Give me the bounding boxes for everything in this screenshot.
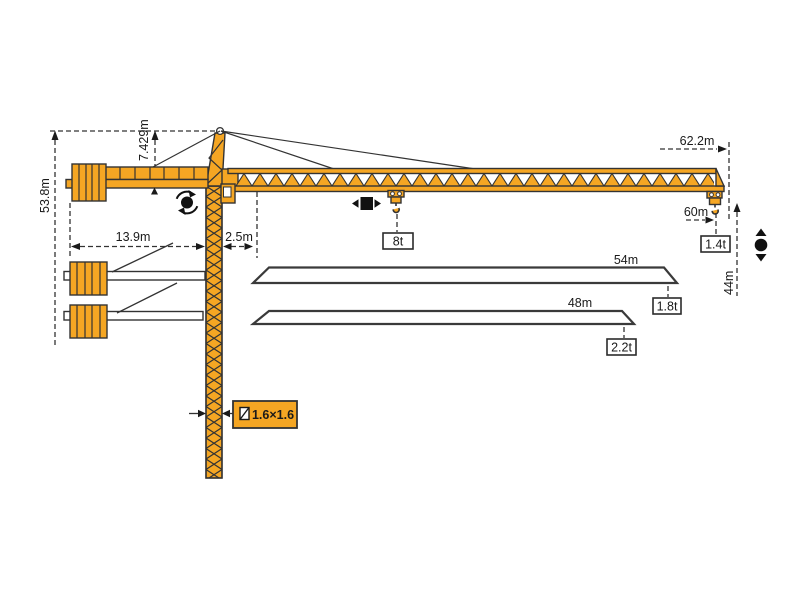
counterjib-radius-label: 13.9m [116, 230, 151, 244]
operator-cab [221, 184, 235, 203]
main-jib [222, 169, 724, 192]
hook-height-label: 44m [722, 271, 736, 295]
max-load-label: 8t [393, 235, 404, 249]
jib-lattice [236, 174, 714, 187]
diagram-canvas: 54m 1.8t 48m 2.2t 53.8m 7.429m 13.9m [0, 0, 800, 600]
jib-outline-54m: 54m 1.8t [253, 253, 681, 314]
mast-section-label: 1.6×1.6 [252, 408, 294, 422]
jib-bottom-chord [222, 186, 724, 192]
tip-hook [712, 205, 718, 214]
total-height-label: 53.8m [38, 178, 52, 213]
leader-line-option-1 [112, 243, 173, 272]
jib-outline-48m: 48m 2.2t [253, 296, 636, 355]
cab-window [224, 187, 232, 197]
slewing-rotation-icon [177, 190, 198, 215]
trolley-hook [393, 203, 399, 212]
counterweight-installed [72, 164, 106, 201]
max-radius-label: 62.2m [680, 134, 715, 148]
trolley [388, 191, 404, 213]
tie-rod-right-2 [221, 131, 482, 170]
tip-load-label: 1.4t [705, 238, 726, 252]
tip-trolley [707, 192, 722, 214]
tower-mast [206, 186, 222, 478]
jib48-tip-load-label: 2.2t [611, 341, 632, 355]
dim-max-load: 8t [383, 214, 413, 249]
jib-tip [716, 169, 724, 187]
mast-cross-section-icon [240, 408, 249, 420]
mast-section-callout: 1.6×1.6 [189, 401, 297, 428]
counterweight-option-1 [64, 262, 205, 295]
jib48-length-label: 48m [568, 296, 592, 310]
min-radius-label: 2.5m [225, 230, 253, 244]
hook-hoist-icon [755, 229, 768, 262]
jib-top-chord [228, 169, 716, 174]
head-height-label: 7.429m [137, 119, 151, 161]
trolley-travel-icon [352, 197, 381, 210]
jib54-length-label: 54m [614, 253, 638, 267]
counterweight-option-2 [64, 305, 203, 338]
crane-dimension-diagram: 54m 1.8t 48m 2.2t 53.8m 7.429m 13.9m [0, 0, 800, 600]
jib54-tip-load-label: 1.8t [657, 300, 678, 314]
dim-hook-radius: 60m 1.4t [684, 205, 730, 252]
leader-line-option-2 [117, 283, 177, 313]
hook-radius-label: 60m [684, 205, 708, 219]
tie-rod-right-1 [221, 131, 340, 171]
